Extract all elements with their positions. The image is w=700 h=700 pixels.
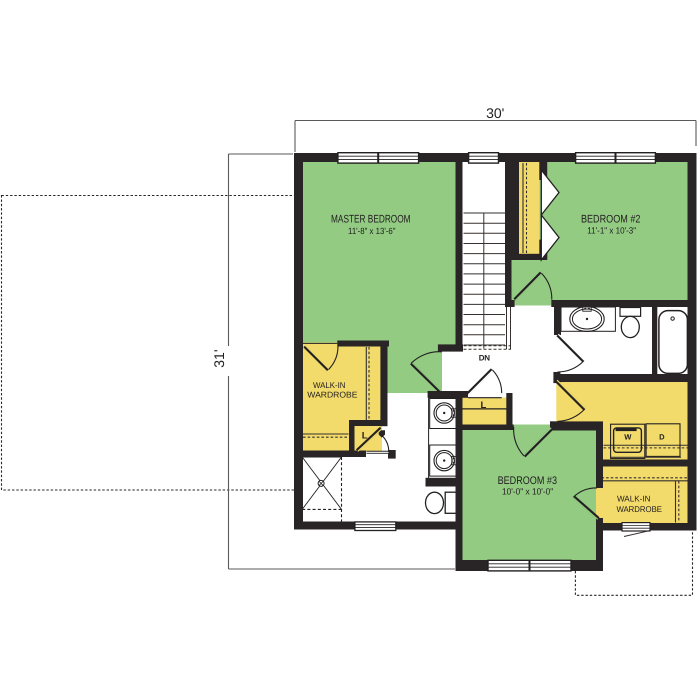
svg-text:BEDROOM #3: BEDROOM #3 <box>498 475 557 487</box>
svg-text:MASTER BEDROOM: MASTER BEDROOM <box>331 213 411 225</box>
svg-text:10'-0" x 10'-0": 10'-0" x 10'-0" <box>502 487 553 497</box>
svg-text:L: L <box>480 400 486 411</box>
svg-text:D: D <box>659 432 665 441</box>
svg-text:WALK-IN: WALK-IN <box>617 494 651 504</box>
svg-text:L: L <box>362 430 368 441</box>
svg-text:11'-1" x 10'-3": 11'-1" x 10'-3" <box>587 225 636 235</box>
svg-text:W: W <box>624 432 632 441</box>
svg-text:WARDROBE: WARDROBE <box>616 504 662 514</box>
svg-text:BEDROOM #2: BEDROOM #2 <box>581 214 641 226</box>
svg-text:WALK-IN: WALK-IN <box>313 380 346 390</box>
svg-text:DN: DN <box>479 354 491 363</box>
svg-text:11'-8" x 13'-6": 11'-8" x 13'-6" <box>348 226 396 236</box>
svg-text:WARDROBE: WARDROBE <box>307 390 358 400</box>
svg-text:30': 30' <box>486 105 504 121</box>
svg-text:31': 31' <box>211 349 227 367</box>
